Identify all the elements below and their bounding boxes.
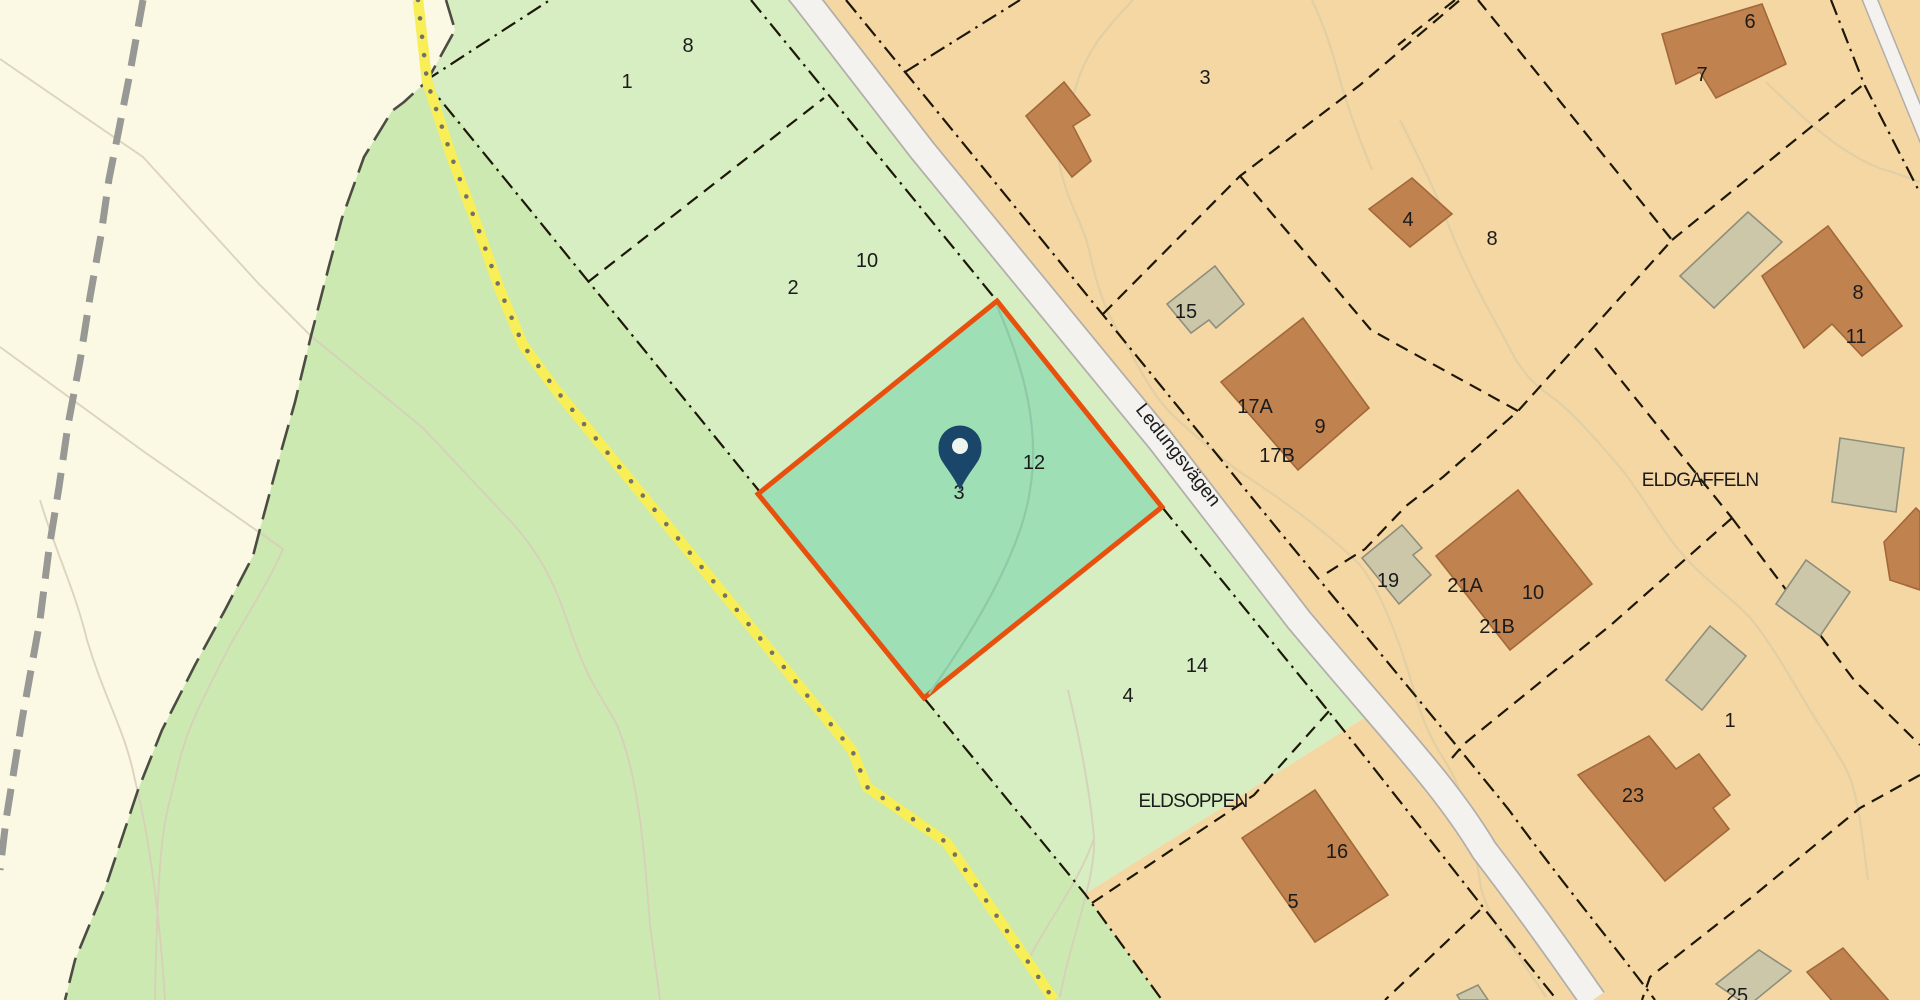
svg-text:5: 5 bbox=[1287, 891, 1298, 913]
svg-text:12: 12 bbox=[1023, 452, 1045, 474]
svg-text:19: 19 bbox=[1377, 570, 1399, 592]
svg-text:16: 16 bbox=[1326, 841, 1348, 863]
svg-text:3: 3 bbox=[1199, 67, 1210, 89]
svg-text:1: 1 bbox=[621, 71, 632, 93]
svg-text:21B: 21B bbox=[1479, 616, 1515, 638]
svg-text:6: 6 bbox=[1744, 11, 1755, 33]
svg-text:8: 8 bbox=[682, 35, 693, 57]
svg-text:2: 2 bbox=[787, 277, 798, 299]
svg-text:14: 14 bbox=[1186, 655, 1208, 677]
svg-text:25: 25 bbox=[1726, 985, 1748, 1000]
svg-text:21A: 21A bbox=[1447, 575, 1483, 597]
svg-text:10: 10 bbox=[856, 250, 878, 272]
svg-text:7: 7 bbox=[1696, 64, 1707, 86]
svg-text:8: 8 bbox=[1852, 282, 1863, 304]
svg-text:9: 9 bbox=[1314, 416, 1325, 438]
svg-text:17A: 17A bbox=[1237, 396, 1273, 418]
svg-text:11: 11 bbox=[1846, 326, 1867, 348]
svg-text:4: 4 bbox=[1122, 685, 1133, 707]
svg-text:23: 23 bbox=[1622, 785, 1644, 807]
svg-text:8: 8 bbox=[1486, 228, 1497, 250]
svg-text:15: 15 bbox=[1175, 301, 1197, 323]
svg-text:ELDSOPPEN: ELDSOPPEN bbox=[1139, 791, 1248, 812]
svg-text:10: 10 bbox=[1522, 582, 1544, 604]
svg-text:4: 4 bbox=[1402, 209, 1413, 231]
svg-text:ELDGAFFELN: ELDGAFFELN bbox=[1642, 470, 1759, 491]
svg-text:17B: 17B bbox=[1259, 445, 1295, 467]
svg-text:1: 1 bbox=[1724, 710, 1735, 732]
